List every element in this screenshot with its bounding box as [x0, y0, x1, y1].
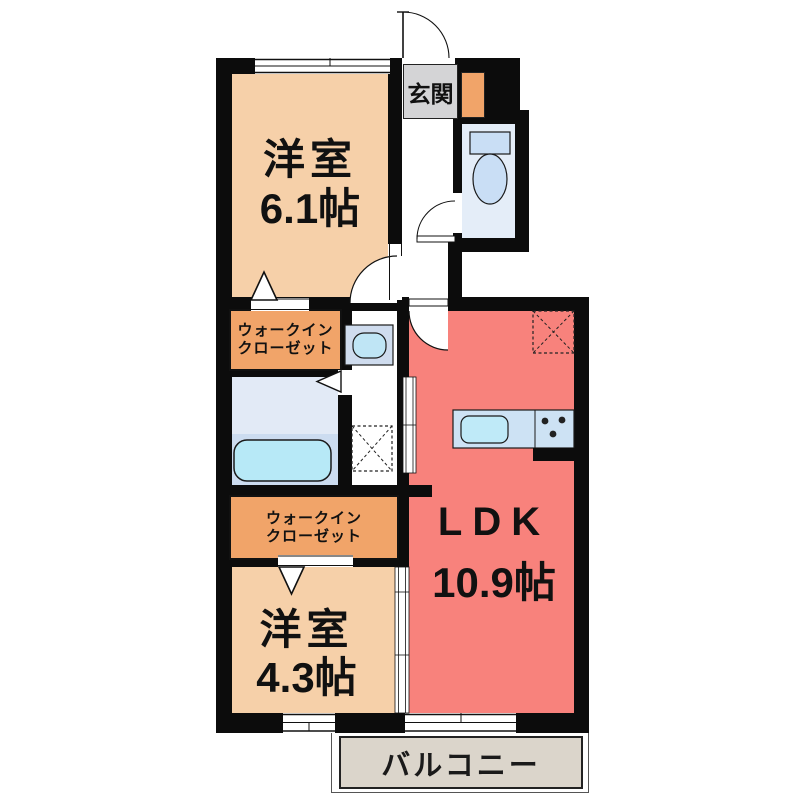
toilet-icon	[470, 132, 510, 204]
toilet-door	[417, 201, 455, 242]
window-bottom-left	[283, 713, 335, 733]
kitchen-counter-icon	[453, 410, 577, 461]
floor-plan: バルコニー ウォークイン クローゼット ウォークイン クローゼット 玄関	[0, 0, 800, 800]
ldk-size: 10.9帖	[404, 549, 584, 610]
bedroom-bottom-size: 4.3帖	[218, 644, 395, 705]
closet-bottom-door	[278, 555, 353, 594]
window-balcony	[405, 713, 516, 733]
ldk-name: LDK	[404, 500, 584, 545]
bedroom-top-size: 6.1帖	[218, 175, 402, 236]
bedroom-top-door	[350, 244, 402, 303]
floorplan-linework	[0, 0, 800, 800]
bathroom-door	[317, 370, 352, 395]
washing-machine-space-icon	[352, 426, 392, 471]
sliding-door-washroom	[403, 377, 416, 473]
entrance-door	[397, 12, 449, 58]
ldk-door	[409, 299, 448, 350]
bathtub-icon	[234, 440, 331, 481]
closet-top-door	[251, 272, 309, 311]
refrigerator-space-icon	[533, 311, 574, 353]
window-top	[255, 58, 390, 74]
washbasin-icon	[345, 325, 393, 365]
